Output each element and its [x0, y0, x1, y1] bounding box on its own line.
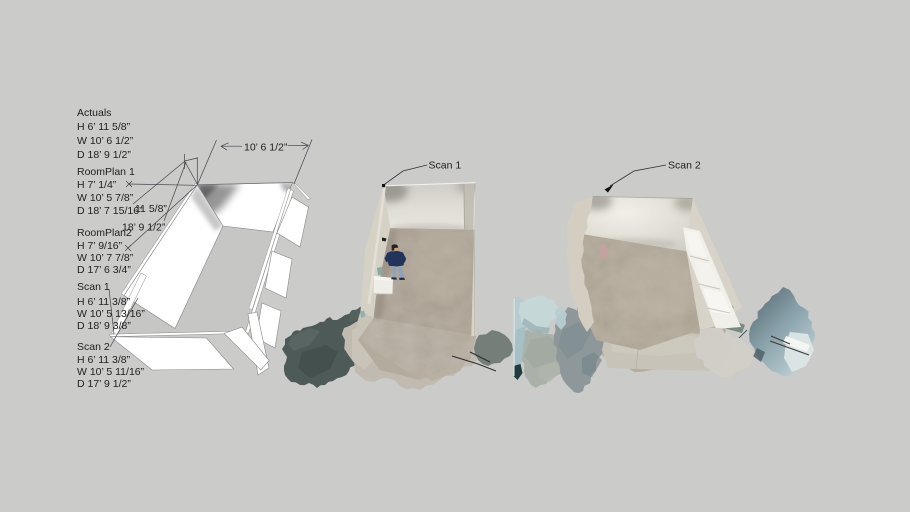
svg-text:D 18’ 9 1/2”: D 18’ 9 1/2” — [77, 149, 131, 161]
svg-text:Scan 1: Scan 1 — [429, 160, 462, 172]
svg-text:W 10’ 6 1/2”: W 10’ 6 1/2” — [77, 135, 134, 147]
svg-text:11 5/8”: 11 5/8” — [135, 203, 167, 215]
svg-text:D 17’ 9 1/2”: D 17’ 9 1/2” — [77, 378, 131, 390]
svg-text:H 7’ 9/16”: H 7’ 9/16” — [77, 240, 123, 252]
svg-text:W 10’ 5 11/16”: W 10’ 5 11/16” — [77, 366, 145, 378]
svg-text:RoomPlan 1: RoomPlan 1 — [77, 166, 135, 178]
svg-text:10’ 6 1/2”: 10’ 6 1/2” — [244, 142, 288, 154]
svg-text:Actuals: Actuals — [77, 107, 111, 119]
svg-text:H 7’ 1/4”: H 7’ 1/4” — [77, 179, 117, 191]
svg-text:H 6’ 11 3/8”: H 6’ 11 3/8” — [77, 296, 131, 308]
svg-text:H 6’ 11 3/8”: H 6’ 11 3/8” — [77, 354, 131, 366]
svg-text:D 17’ 6 3/4”: D 17’ 6 3/4” — [77, 264, 131, 276]
svg-text:Scan 1: Scan 1 — [77, 281, 110, 293]
svg-text:W 10’ 5 7/8”: W 10’ 5 7/8” — [77, 192, 134, 204]
svg-text:H 6’ 11 5/8”: H 6’ 11 5/8” — [77, 121, 131, 133]
svg-text:D 18’ 7 15/16”: D 18’ 7 15/16” — [77, 205, 143, 217]
svg-text:18’ 9 1/2”: 18’ 9 1/2” — [122, 222, 166, 234]
svg-text:W 10’ 7 7/8”: W 10’ 7 7/8” — [77, 252, 134, 264]
svg-text:Scan 2: Scan 2 — [77, 341, 110, 353]
svg-text:Scan 2: Scan 2 — [668, 160, 701, 172]
svg-text:W 10’ 5 13/16”: W 10’ 5 13/16” — [77, 308, 145, 320]
svg-text:D 18’ 9 3/8”: D 18’ 9 3/8” — [77, 320, 131, 332]
